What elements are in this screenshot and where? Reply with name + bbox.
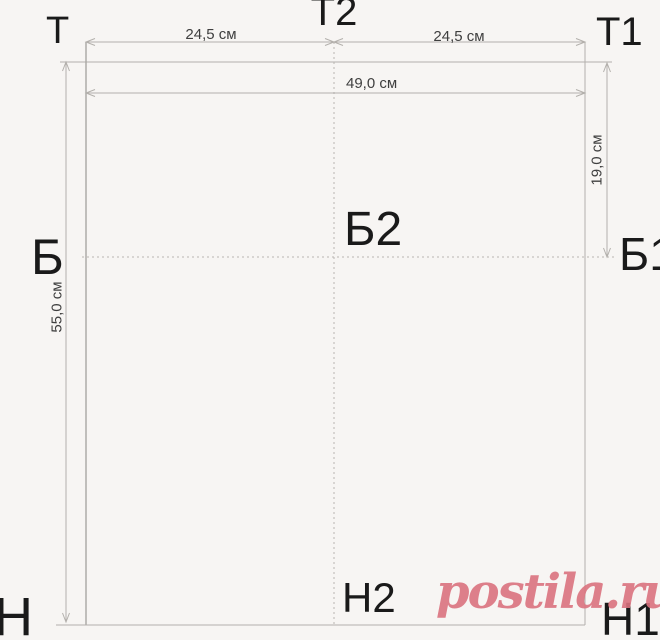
watermark-postila: postila.ru: [436, 568, 660, 616]
dimension-label-top-right-half: 24,5 см: [433, 29, 484, 44]
dimension-label-hip-depth: 19,0 см: [590, 134, 605, 185]
pattern-geometry: [0, 0, 660, 640]
point-label-t2: Т2: [311, 0, 358, 32]
point-label-n2: Н2: [342, 577, 396, 619]
point-label-t: Т: [46, 12, 69, 50]
point-label-t1: Т1: [596, 12, 643, 52]
dimension-label-top-left-half: 24,5 см: [185, 27, 236, 42]
point-label-b2: Б2: [344, 206, 402, 254]
pattern-diagram: Т Т2 Т1 Б Б2 Б1 Н Н2 Н1 24,5 см 24,5 см …: [0, 0, 660, 640]
dimension-label-total-width: 49,0 см: [346, 76, 397, 91]
point-label-b1: Б1: [619, 231, 660, 277]
point-label-n: Н: [0, 590, 33, 640]
dimension-label-total-height: 55,0 см: [50, 281, 65, 332]
point-label-b: Б: [31, 232, 64, 282]
